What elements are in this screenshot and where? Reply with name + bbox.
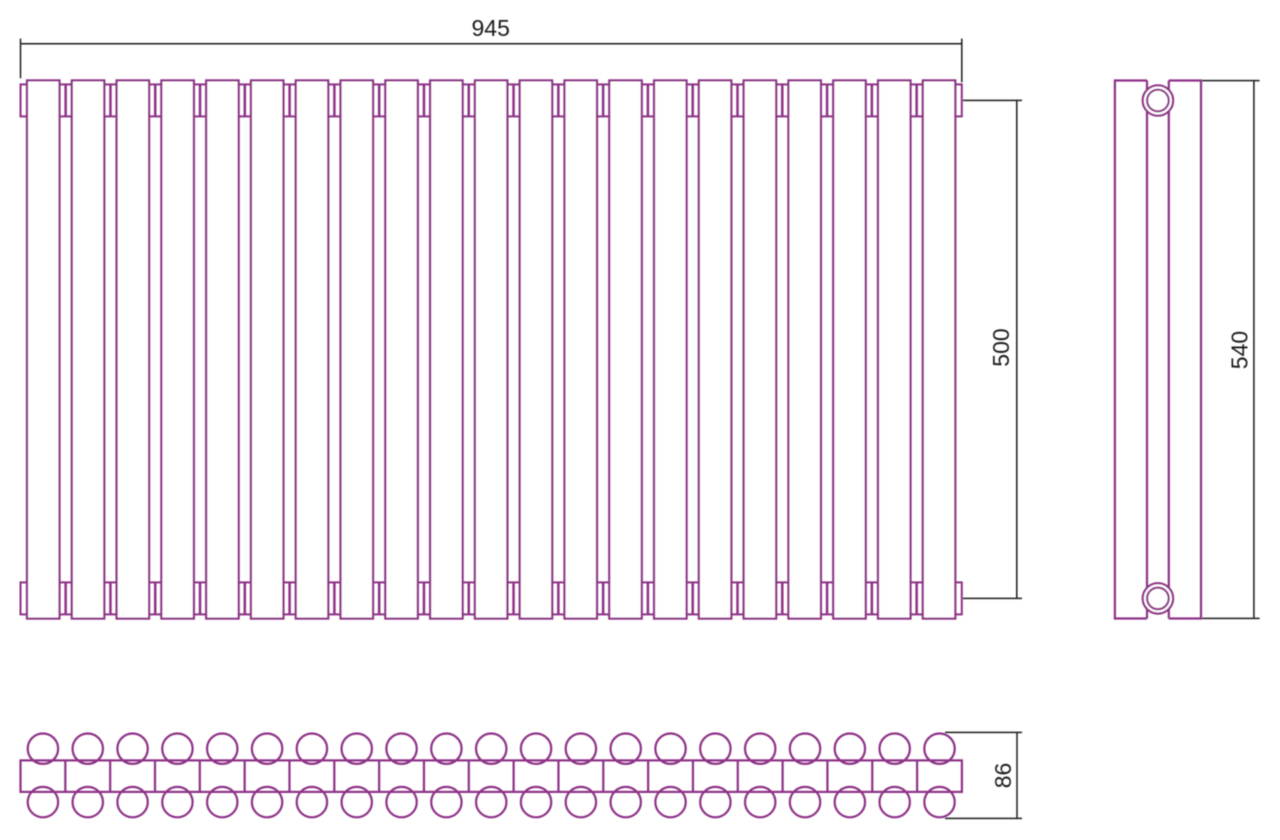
svg-text:540: 540	[1226, 331, 1252, 369]
svg-text:500: 500	[988, 328, 1014, 366]
svg-text:86: 86	[990, 763, 1016, 789]
svg-text:945: 945	[472, 15, 510, 41]
